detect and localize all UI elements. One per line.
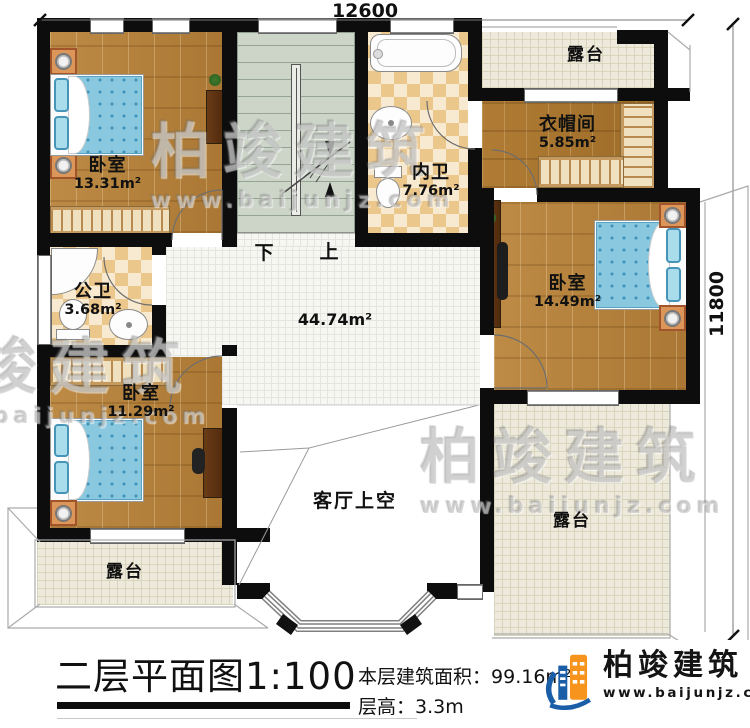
- wall-cloak-right: [654, 101, 668, 188]
- bathtub-basin: [377, 39, 456, 67]
- window: [527, 390, 619, 406]
- window: [37, 255, 52, 345]
- title-block: 二层平面图1:100 本层建筑面积：99.16m² 层高：3.3m: [0, 640, 750, 728]
- dimension-top: 12600: [320, 0, 410, 22]
- nightstand: [659, 203, 686, 228]
- pillow: [54, 424, 69, 457]
- terrace-top-label: 露台: [560, 40, 612, 65]
- wall-bedl-right-b: [222, 408, 237, 585]
- bay-post-left: [237, 583, 270, 599]
- wall-bath-inner-terrace: [468, 32, 482, 88]
- wall-stairs-right: [355, 18, 368, 247]
- wall-pub-bottom: [37, 345, 166, 357]
- basin-drain-icon: [388, 120, 394, 126]
- nightstand: [50, 48, 77, 75]
- floor-plan: 柏竣建筑 www.baijunjz.com 柏竣建筑 www.baijunjz.…: [0, 0, 750, 728]
- floor-area-info: 本层建筑面积：99.16m²: [358, 662, 572, 689]
- pillow: [666, 228, 681, 263]
- chair-icon: [192, 448, 205, 474]
- plant-icon: [209, 74, 221, 86]
- pillow: [54, 461, 69, 494]
- pillow: [666, 267, 681, 302]
- window: [90, 528, 185, 544]
- terrace-bottomright-label: 露台: [546, 506, 598, 531]
- wall-bath-inner-bottom: [355, 233, 482, 247]
- wall-bedr-top-b: [537, 188, 700, 202]
- faucet-icon: [373, 49, 383, 59]
- window: [90, 18, 124, 34]
- lamp-icon: [55, 53, 72, 70]
- wall-terrace-tr-right: [654, 30, 668, 92]
- wall-bedl-right-a: [222, 345, 237, 356]
- wardrobe: [50, 357, 170, 386]
- closet-rack: [538, 156, 624, 188]
- wall-pub-right-a: [152, 247, 166, 255]
- terrace-bottomleft-label: 露台: [99, 557, 151, 582]
- plan-scale: 1:100: [245, 655, 357, 698]
- logo-text: 柏竣建筑 www.baijunjz.com: [603, 650, 750, 701]
- stair-rail-line: [296, 68, 297, 212]
- pillow: [54, 78, 69, 112]
- plan-title: 二层平面图1:100: [55, 646, 357, 700]
- lamp-icon: [664, 310, 681, 327]
- wall-bedtl-bottom: [37, 233, 172, 247]
- wall-stairs-left: [222, 18, 237, 247]
- room-label-bedroom-left: 卧室 11.29m²: [96, 384, 186, 420]
- title-underline: [57, 702, 350, 709]
- wall-pub-right-b: [152, 305, 166, 350]
- window: [457, 584, 483, 600]
- toilet-tank: [56, 329, 90, 340]
- window: [152, 18, 190, 34]
- lamp-icon: [55, 505, 72, 522]
- pillow: [54, 116, 69, 150]
- wardrobe: [50, 206, 170, 235]
- logo-company-name: 柏竣建筑: [603, 650, 750, 682]
- nightstand: [659, 305, 686, 331]
- desk: [203, 428, 224, 498]
- bay-post-right: [427, 583, 457, 599]
- wall-bedr-left-a: [480, 188, 494, 335]
- living-void-label: 客厅上空: [300, 486, 410, 513]
- lamp-icon: [664, 207, 681, 224]
- stairs-down-label: 下: [252, 238, 276, 265]
- stairs-up-label: 上: [317, 237, 341, 264]
- plan-title-text: 二层平面图: [55, 655, 245, 698]
- hall-area-label: 44.74m²: [285, 310, 385, 329]
- logo-company-url: www.baijunjz.com: [603, 685, 750, 701]
- basin-drain-icon: [126, 322, 132, 328]
- company-logo: 柏竣建筑 www.baijunjz.com: [543, 650, 750, 710]
- room-label-cloakroom: 衣帽间 5.85m²: [520, 115, 615, 151]
- nightstand: [50, 500, 77, 526]
- logo-building-icon: [543, 650, 597, 710]
- wall-terrace-br-left: [480, 404, 494, 592]
- room-label-bath-public: 公卫 3.68m²: [58, 282, 128, 318]
- room-label-bath-inner: 内卫 7.76m²: [395, 163, 467, 199]
- wardrobe: [620, 103, 656, 189]
- monitor-icon: [497, 242, 508, 300]
- wall-bedr-right: [686, 188, 700, 404]
- room-label-bedroom-topleft: 卧室 13.31m²: [60, 156, 155, 192]
- floor-height-info: 层高：3.3m: [358, 692, 464, 719]
- window: [524, 88, 618, 103]
- tv-stand: [206, 90, 223, 144]
- room-label-bedroom-right: 卧室 14.49m²: [520, 274, 615, 310]
- dimension-right: 11800: [706, 277, 728, 337]
- bay-window: [266, 595, 432, 635]
